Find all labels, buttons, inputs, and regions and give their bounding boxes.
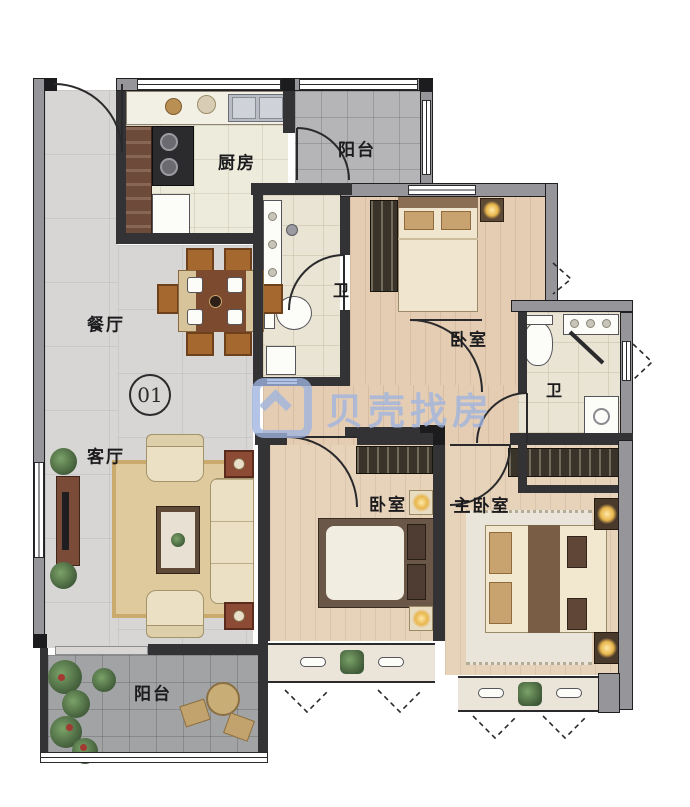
bedroom-bottom-wardrobe [356,446,433,474]
balcony-berry [58,674,65,681]
master-cushion [567,536,587,568]
armchair-2-back [146,625,204,638]
master-right-wall [618,440,633,710]
living-plant-2 [50,562,77,589]
place-setting-2 [227,277,243,293]
wall-column-2 [281,78,295,91]
wall-column-3 [419,78,433,91]
dining-chair-6 [261,284,283,314]
master-bay-corner [598,673,620,713]
bath-center-window-box [266,346,296,375]
bedroom-divider-wall [433,445,445,641]
kitchen-sink-basin-2 [259,97,283,119]
dining-chair-3 [186,332,214,356]
balcony-top-label: 阳台 [338,136,376,161]
bay-sill [300,657,326,667]
bath-right-left-wall-2 [518,443,527,490]
master-pillow-2 [489,582,512,624]
bed-headboard [398,197,478,208]
living-balcony-wall [148,644,268,655]
balcony-step [55,646,148,655]
living-plant [50,448,77,475]
living-label: 客厅 [87,443,125,468]
bath-center-right-wall-2 [340,310,350,385]
kitchen-left-wall [116,91,126,243]
kitchen-window [137,79,281,90]
balcony-top-window [299,79,418,90]
living-left-window [34,462,44,558]
master-bay-plant [518,682,542,706]
armchair-back [146,434,204,447]
balcony-round-table [206,682,240,716]
sofa [210,478,254,604]
bedroom-bottom-left-wall [258,445,270,641]
stove-burner [160,133,178,151]
center-bowl [209,295,222,308]
master-cushion-2 [567,598,587,630]
tv-screen [62,492,69,550]
wall-column-6 [33,634,47,648]
bay-sill-2 [378,657,404,667]
balcony-bottom-right-wall [258,641,268,758]
balcony-bottom-label: 阳台 [134,680,172,705]
watermark-text: 贝壳找房 [326,381,494,435]
coffee-table-deco [171,533,185,547]
kitchen-label: 厨房 [218,149,256,174]
washing-machine-door [593,408,610,425]
vanity-r-knob-3 [602,319,611,328]
dining-chair-4 [224,332,252,356]
master-bed-runner [528,525,560,633]
balcony-right-window [422,100,431,175]
kitchen-plate-2 [197,95,216,114]
master-bay-sill-2 [556,688,582,698]
master-top-wall [510,433,633,445]
master-lamp-glow-2 [597,638,617,658]
bath-center-top-wall [251,183,352,195]
vanity-r-knob [570,319,579,328]
bed-pillow [404,211,434,230]
bb-lamp-glow-2 [412,609,431,628]
bb-lamp-glow [412,493,431,512]
balcony-bottom-window [40,752,268,763]
place-setting-4 [227,309,243,325]
bath-right-top-wall [511,300,633,312]
bath-right-label: 卫 [546,377,562,401]
bed-duvet-fold [398,238,478,240]
dining-chair-2 [224,248,252,272]
bedroom-bottom-pillow-2 [407,564,426,600]
bedroom-top-wardrobe [370,200,398,292]
bath-center-left-wall [253,195,263,385]
kitchen-balcony-wall [283,91,295,133]
balcony-berry-2 [66,724,73,731]
kitchen-appliance [152,194,190,236]
bedroom-bottom-label: 卧室 [369,491,407,516]
vanity-r-knob-2 [586,319,595,328]
bath-center-label: 卫 [333,277,349,301]
side-table-deco [233,458,245,470]
kitchen-bottom-wall [116,233,255,244]
kitchen-tall-cabinet [124,126,152,238]
side-table-2-deco [233,610,245,622]
vanity-knob [268,212,277,221]
kitchen-plate [165,98,182,115]
balcony-plant [48,660,82,694]
balcony-berry-3 [80,744,87,751]
dining-chair [186,248,214,272]
bath-right-window [622,341,631,381]
bedroom-bottom-duvet [326,526,404,600]
lamp-glow [483,201,501,219]
balcony-bottom-left-wall [40,648,48,758]
bedroom-top-lintel [408,185,476,195]
toilet-right-bowl [523,322,553,366]
master-bay-sill [478,688,504,698]
master-pillow [489,532,512,574]
watermark: 贝壳找房 [252,378,494,438]
vanity-knob-2 [268,240,277,249]
wall-left [33,78,45,648]
stove-burner-2 [160,158,178,176]
beike-logo-icon [252,378,312,438]
kitchen-sink-basin [232,97,256,119]
bath-right-bottom-wall [518,485,620,493]
unit-number-badge: 01 [129,374,171,416]
balcony-plant-2 [62,690,90,718]
bedroom-bottom-pillow [407,524,426,560]
place-setting [187,277,203,293]
toilet-right-tank [523,315,553,325]
dining-label: 餐厅 [87,311,125,336]
bedroom-top-label: 卧室 [450,326,488,351]
floor-plan: 厨房 阳台 卫 卧室 卫 餐厅 客厅 卧室 主卧室 阳台 01 贝壳找房 [0,0,690,807]
place-setting-3 [187,309,203,325]
bath-center-right-wall [340,197,350,255]
bath-right-left-wall [518,312,527,393]
master-lamp-glow [597,504,617,524]
master-bedroom-label: 主卧室 [454,492,511,517]
bay-plant [340,650,364,674]
shower-head [286,224,298,236]
dining-chair-5 [157,284,179,314]
balcony-plant-5 [92,668,116,692]
vanity-knob-3 [268,268,277,277]
bedroom-top-right-wall [545,183,558,303]
bed-pillow-2 [441,211,471,230]
